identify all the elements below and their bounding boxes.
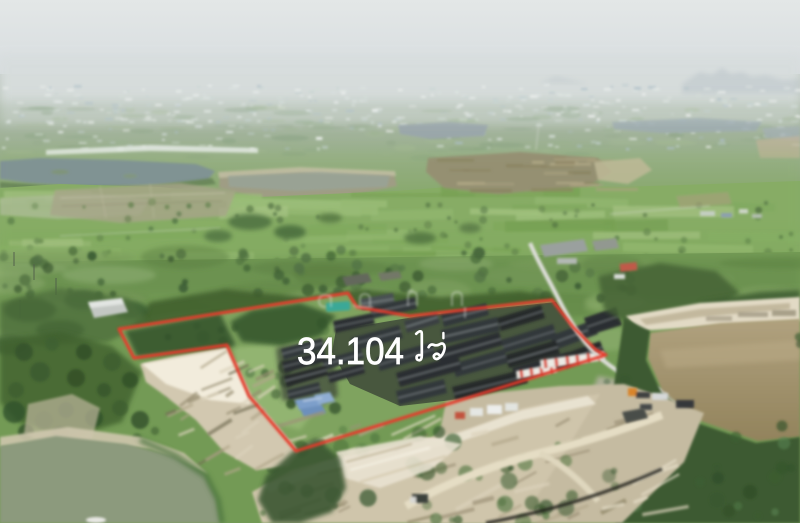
svg-text:34.104: 34.104 — [297, 331, 404, 373]
